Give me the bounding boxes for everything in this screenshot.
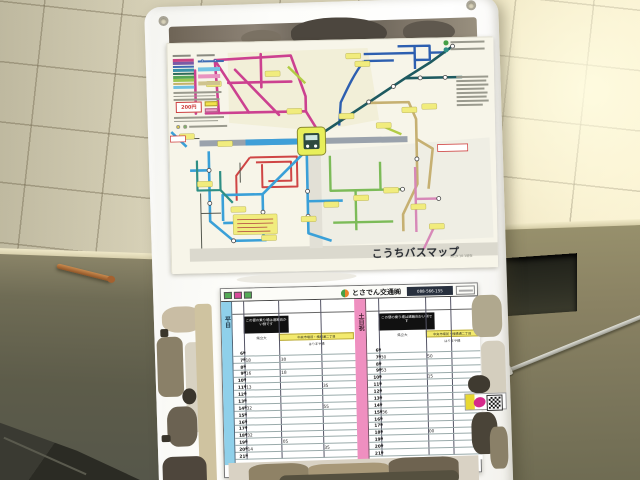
operator-name: とさでん交通㈱ xyxy=(352,287,401,298)
minute-value: 50 xyxy=(427,353,432,358)
fare-badge: 200円 xyxy=(176,101,202,113)
minute-value: 35 xyxy=(323,383,328,388)
wall-opening xyxy=(497,253,577,317)
column-header: 医療センター xyxy=(243,302,278,303)
map-revision-note: 2019.10.1現在 xyxy=(450,253,473,258)
hour-label: 11時 xyxy=(234,385,244,390)
legend-color-bars xyxy=(173,59,195,90)
minute-value: 16 xyxy=(246,371,251,376)
route-chip xyxy=(224,292,232,299)
minute-value: 14 xyxy=(248,447,253,452)
mounting-hole xyxy=(158,16,168,26)
qr-code xyxy=(487,395,501,409)
hour-label: 20時 xyxy=(235,447,245,452)
minute-value: 55 xyxy=(323,404,328,409)
timetable-row: 21時 xyxy=(236,450,358,460)
minute-value: 00 xyxy=(429,429,434,434)
legend-samples xyxy=(198,58,228,59)
column-header: 県庁前 xyxy=(278,301,319,302)
bolt xyxy=(160,329,168,337)
via-left-label: 県立大 xyxy=(244,335,279,341)
panel-column-headers: 医療センター桟橋車庫 xyxy=(366,296,479,312)
hour-label: 19時 xyxy=(369,437,380,442)
photo-scene: 200円 こうちバスマップ 2019.10.1現在 xyxy=(0,0,640,480)
header-note-box xyxy=(456,285,475,294)
hour-label: 7時 xyxy=(233,357,243,362)
hour-label: 10時 xyxy=(234,378,244,383)
hour-label: 14時 xyxy=(368,402,379,407)
hour-label: 10時 xyxy=(368,375,379,380)
hour-label: 17時 xyxy=(369,423,380,428)
route-chip xyxy=(234,292,242,299)
minute-value: 30 xyxy=(381,354,386,359)
timetable-panel-holiday: 医療センター桟橋車庫この便の乗り場は道路向かい側です県立大中央市場前・棧橋通二丁… xyxy=(366,296,483,462)
harimaya-terminal-icon xyxy=(297,127,326,156)
timetable-poster: とさでん交通㈱ 088-566-155 平日 医療センター県庁前桟橋車庫この便の… xyxy=(220,282,482,478)
via-sub-label: はりまや橋 xyxy=(426,337,479,344)
boarding-notice: この便の乗り場は道路向かい側です xyxy=(243,316,288,334)
column-header: 桟橋車庫 xyxy=(320,300,354,301)
hour-label: 11時 xyxy=(368,382,379,387)
hour-label: 12時 xyxy=(368,389,379,394)
hour-label: 19時 xyxy=(235,440,245,445)
minute-value: 13 xyxy=(246,385,251,390)
hour-label: 7時 xyxy=(367,354,378,359)
minute-value: 18 xyxy=(281,370,286,375)
hour-rows: 6時7時18308時9時161810時11時133512時13時14時32551… xyxy=(233,347,357,460)
hour-label: 12時 xyxy=(234,392,244,397)
operator-logos xyxy=(443,39,491,40)
hour-label: 13時 xyxy=(368,396,379,401)
legend-point-icon xyxy=(176,125,180,129)
minute-value: 05 xyxy=(283,439,288,444)
hour-label: 9時 xyxy=(234,371,244,376)
minute-value: 15 xyxy=(428,374,433,379)
minute-value: 36 xyxy=(382,409,387,414)
ic-card-chip xyxy=(205,108,218,113)
via-left-label: 県立大 xyxy=(379,332,425,338)
hour-label: 14時 xyxy=(234,405,244,410)
bus-route-map-poster: 200円 こうちバスマップ 2019.10.1現在 xyxy=(166,36,497,273)
hour-label: 18時 xyxy=(235,433,245,438)
minute-value: 53 xyxy=(381,368,386,373)
phone-number: 088-566-155 xyxy=(407,286,453,296)
minute-value: 32 xyxy=(247,405,252,410)
hour-label: 21時 xyxy=(236,454,246,459)
hour-label: 18時 xyxy=(369,430,380,435)
hour-label: 15時 xyxy=(235,412,245,417)
ic-card-chip xyxy=(205,101,218,106)
hour-label: 8時 xyxy=(234,364,244,369)
minute-value: 30 xyxy=(281,356,286,361)
minute-value: 35 xyxy=(324,445,329,450)
panel-column-headers: 医療センター県庁前桟橋車庫 xyxy=(232,299,354,315)
hour-label: 6時 xyxy=(233,350,243,355)
column-header: 医療センター xyxy=(378,299,424,300)
hour-label: 16時 xyxy=(235,419,245,424)
bolt xyxy=(162,435,171,442)
column-header xyxy=(425,298,450,299)
minute-value: 18 xyxy=(246,357,251,362)
bus-stop-sign-board: 200円 こうちバスマップ 2019.10.1現在 xyxy=(144,0,513,480)
hour-label: 20時 xyxy=(369,444,380,449)
hour-label: 21時 xyxy=(370,451,381,456)
hour-label: 16時 xyxy=(369,416,380,421)
mounting-hole xyxy=(466,0,476,10)
map-legend: 200円 xyxy=(173,58,233,145)
tosaden-logo-icon xyxy=(341,289,349,297)
hour-label: 8時 xyxy=(367,361,378,366)
timetable-panel-weekday: 医療センター県庁前桟橋車庫この便の乗り場は道路向かい側です県立大中央市場前・棧橋… xyxy=(232,299,358,465)
map-side-notes xyxy=(456,75,490,76)
hour-label: 13時 xyxy=(234,399,244,404)
route-chip xyxy=(244,291,252,298)
hour-label: 15時 xyxy=(369,409,380,414)
minute-value: 32 xyxy=(247,433,252,438)
hour-label: 17時 xyxy=(235,426,245,431)
via-highlight: 中央市場前・棧橋通二丁目 xyxy=(426,329,479,337)
hour-label: 9時 xyxy=(368,368,379,373)
qr-code-sticker xyxy=(464,392,507,410)
hour-label: 6時 xyxy=(367,347,378,352)
legend-point-icon xyxy=(183,125,187,129)
